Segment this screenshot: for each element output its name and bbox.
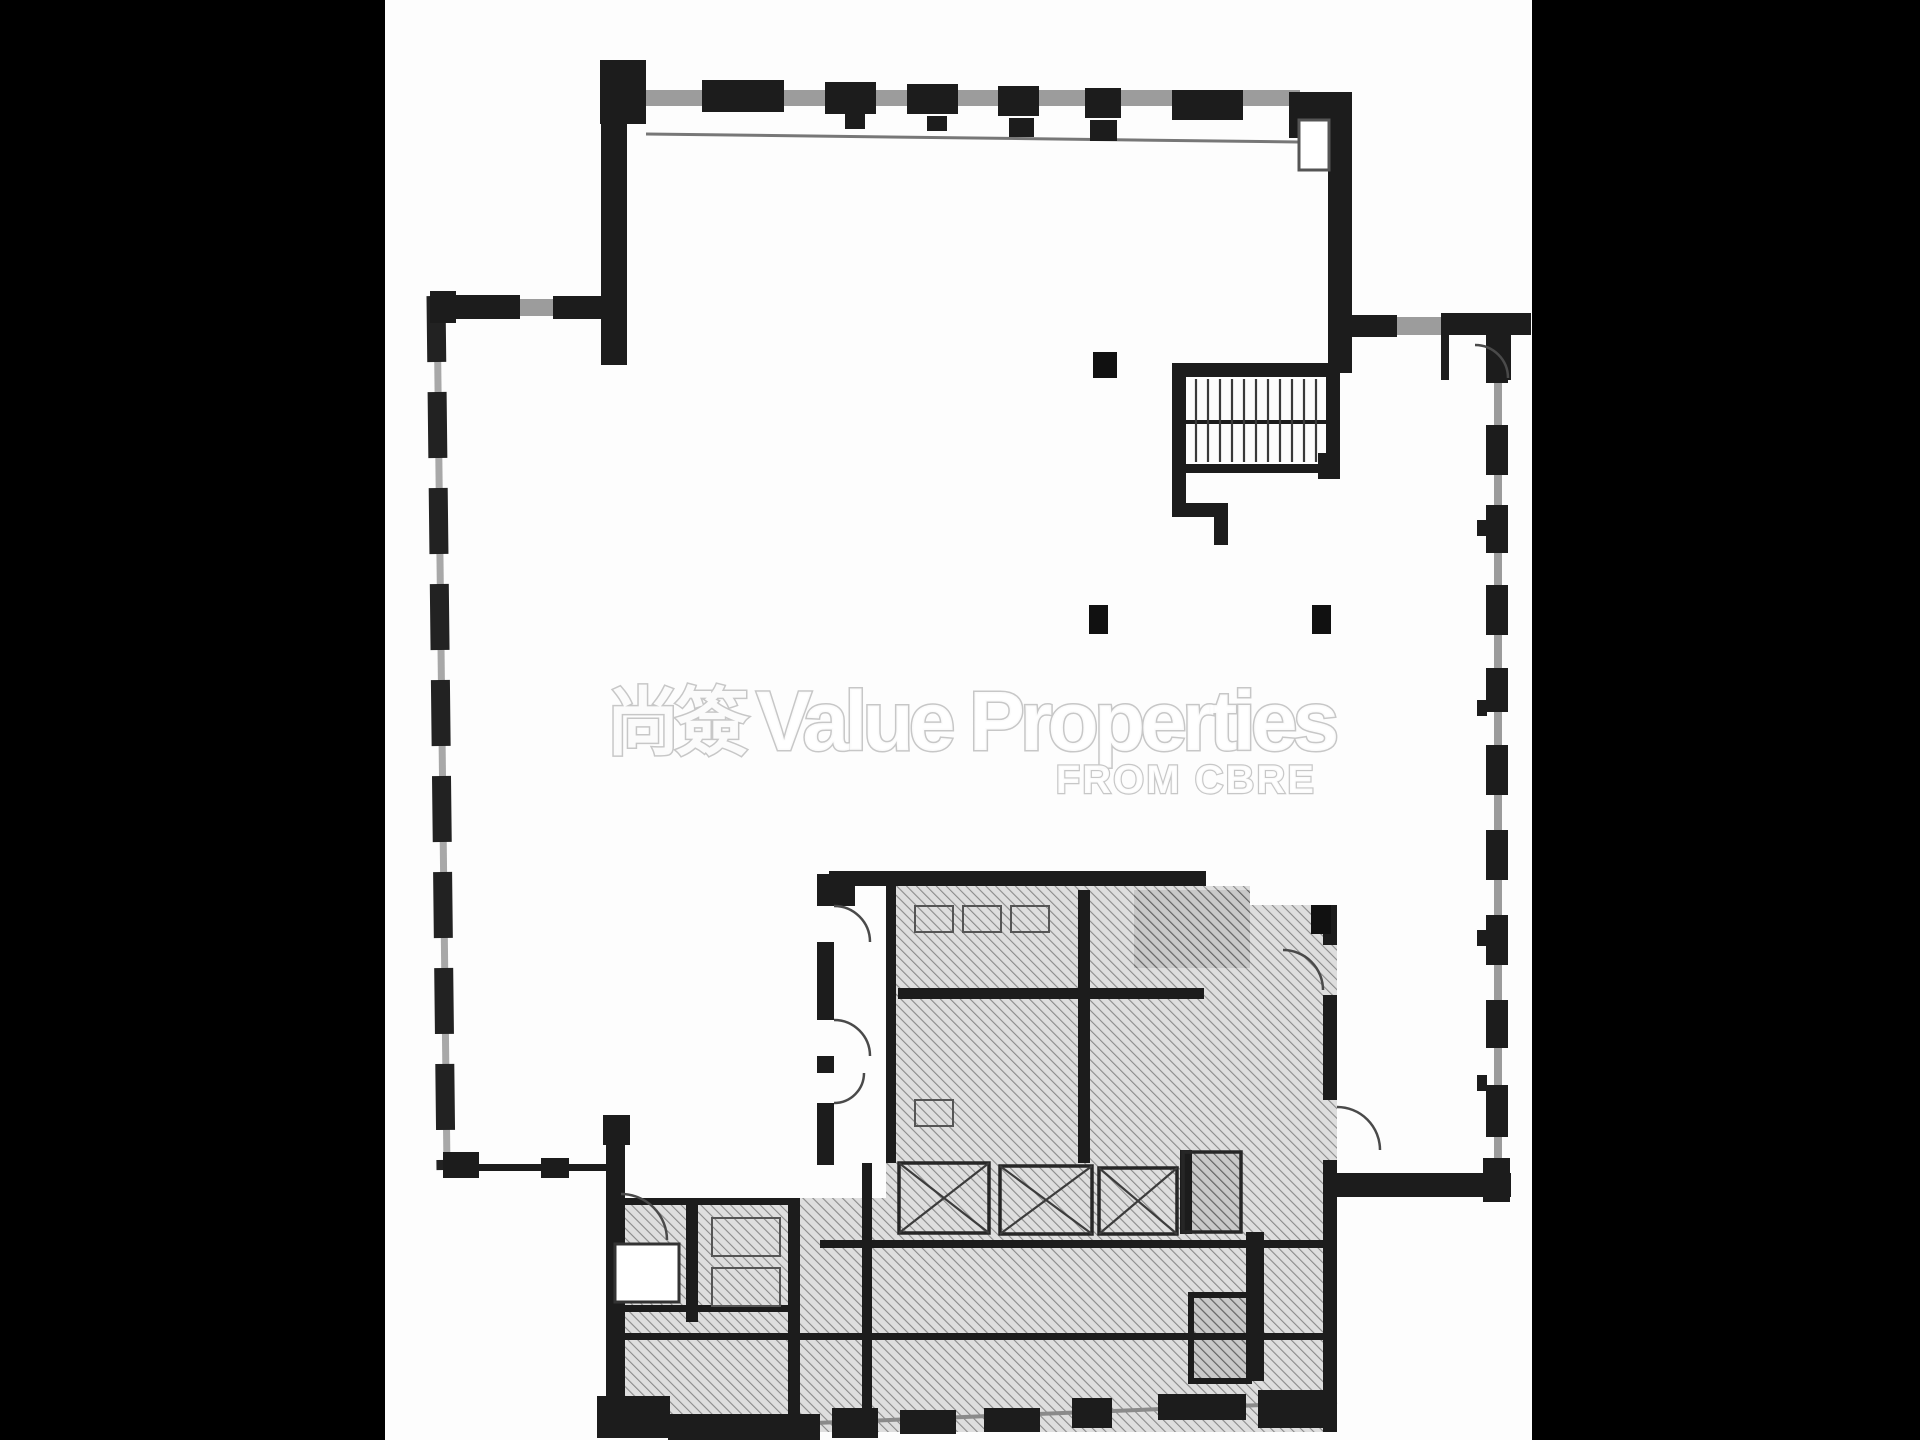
- hatched-core-region: [1134, 890, 1250, 968]
- wall-segment: [1486, 830, 1508, 880]
- wall-segment: [1477, 520, 1487, 536]
- wall-segment: [862, 1163, 872, 1432]
- wall-segment: [1486, 915, 1508, 965]
- wall-segment: [829, 871, 1206, 886]
- door-swing-arc: [834, 906, 870, 942]
- watermark-cjk-text: 尚簽: [606, 681, 749, 764]
- window-wall-segment: [1397, 317, 1441, 335]
- wall-segment: [1337, 1173, 1511, 1197]
- wall-segment: [1214, 517, 1228, 545]
- wall-segment: [1352, 315, 1397, 337]
- wall-segment: [603, 1115, 630, 1145]
- column: [1311, 905, 1331, 934]
- watermark-main-text: Value Properties: [756, 674, 1337, 768]
- wall-segment: [998, 86, 1039, 116]
- column: [1089, 605, 1108, 634]
- wall-segment: [612, 1333, 1337, 1340]
- wall-segment: [1441, 335, 1449, 380]
- wall-segment: [1009, 118, 1034, 137]
- wall-segment: [1085, 88, 1121, 118]
- wall-segment: [443, 1164, 613, 1171]
- right-black-bar: [1532, 0, 1920, 1440]
- wall-segment: [817, 1103, 834, 1165]
- column: [1093, 352, 1117, 378]
- wall-segment: [1486, 1085, 1508, 1137]
- wall-segment: [1477, 700, 1487, 716]
- wall-segment: [817, 886, 834, 906]
- wall-segment: [1486, 745, 1508, 795]
- wall-segment: [1441, 313, 1531, 335]
- wall-segment: [907, 84, 958, 114]
- room-outline: [615, 1244, 679, 1302]
- wall-segment: [1072, 1398, 1112, 1428]
- door-swing-arc: [834, 1020, 870, 1056]
- wall-segment: [845, 114, 865, 129]
- wall-segment: [1078, 890, 1090, 1163]
- watermark-cbre-text: FROM CBRE: [1056, 758, 1316, 802]
- wall-segment: [1477, 1075, 1487, 1091]
- wall-segment: [1477, 930, 1487, 946]
- wall-segment: [1486, 585, 1508, 635]
- wall-segment: [788, 1198, 800, 1432]
- wall-segment: [1172, 503, 1228, 517]
- door-swing-arc: [834, 1073, 864, 1103]
- wall-segment: [1486, 505, 1508, 553]
- wall-segment: [600, 60, 646, 124]
- wall-segment: [1172, 363, 1186, 475]
- wall-segment: [886, 886, 896, 1163]
- wall-segment: [702, 80, 784, 112]
- window-wall-segment: [520, 299, 553, 316]
- wall-segment: [1323, 995, 1337, 1100]
- wall-segment: [1090, 120, 1117, 141]
- wall-segment: [817, 1056, 834, 1073]
- wall-segment: [1158, 1394, 1246, 1420]
- wall-segment: [900, 1410, 956, 1434]
- wall-segment: [1172, 363, 1340, 377]
- wall-segment: [817, 942, 834, 1020]
- wall-segment: [825, 82, 876, 114]
- column: [1312, 605, 1331, 634]
- wall-segment: [1486, 1000, 1508, 1048]
- wall-segment: [1318, 453, 1340, 479]
- wall-segment: [686, 1200, 698, 1322]
- wall-segment: [1323, 1160, 1337, 1432]
- wall-segment: [927, 116, 947, 131]
- wall-segment: [1486, 425, 1508, 475]
- wall-segment: [1486, 333, 1508, 383]
- left-black-bar: [0, 0, 385, 1440]
- wall-segment: [601, 124, 627, 365]
- scanned-floorplan-page: 尚簽 Value Properties FROM CBRE: [0, 0, 1920, 1440]
- wall-segment: [453, 295, 520, 319]
- wall-segment: [898, 988, 1204, 999]
- wall-segment: [1486, 668, 1508, 712]
- wall-line: [436, 296, 446, 1170]
- door-swing-arc: [1337, 1107, 1380, 1150]
- wall-segment: [597, 1396, 670, 1438]
- wall-line: [646, 134, 1298, 142]
- room-outline: [1299, 120, 1329, 170]
- wall-segment: [1328, 138, 1352, 373]
- wall-segment: [1172, 90, 1243, 120]
- wall-segment: [984, 1408, 1040, 1432]
- wall-segment: [553, 296, 611, 319]
- floor-plan-svg: 尚簽 Value Properties FROM CBRE: [0, 0, 1920, 1440]
- wall-segment: [1186, 464, 1340, 473]
- wall-segment: [430, 291, 456, 323]
